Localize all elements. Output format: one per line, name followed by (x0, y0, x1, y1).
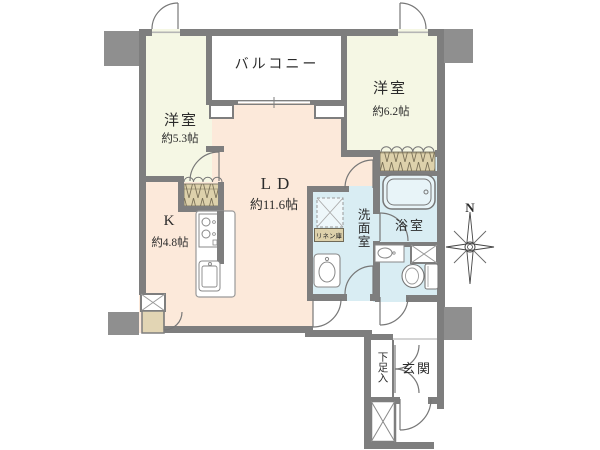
compass-star-icon (446, 212, 494, 284)
door-bedroom-right-window (400, 3, 426, 29)
meter-box-icon (141, 294, 165, 311)
entrance-label: 玄関 (402, 362, 432, 376)
bedroom-left-label: 洋室 (164, 114, 198, 130)
door-front (400, 399, 431, 430)
washbasin-icon (314, 254, 340, 287)
bathtub-icon (383, 175, 435, 209)
bathroom-label: 浴室 (395, 219, 425, 233)
stove-icon (199, 214, 219, 247)
kitchen-label: K (164, 214, 177, 230)
storage-box (142, 311, 164, 333)
linen-closet-label: リネン庫 (314, 228, 344, 242)
compass-north-label: N (465, 201, 474, 215)
living-dining-label: LD (261, 175, 296, 193)
floorplan-page: バルコニー 洋室 約5.3帖 洋室 約6.2帖 LD 約11.6帖 K 約4.8… (0, 0, 600, 450)
toilet-icon (402, 264, 438, 289)
hand-basin-icon (375, 245, 404, 262)
kitchen-sink-icon (199, 261, 220, 291)
shaft-box-icon (371, 401, 395, 442)
kitchen-size: 約4.8帖 (151, 237, 188, 249)
shoe-cabinet-label: 下足入 (376, 351, 387, 383)
balcony-label: バルコニー (235, 59, 320, 74)
pipe-space-icon (411, 245, 437, 263)
bedroom-left-size: 約5.3帖 (161, 133, 198, 145)
living-dining-size: 約11.6帖 (250, 198, 298, 212)
door-bedroom-left-window (152, 3, 178, 29)
washroom-label: 洗面室 (355, 208, 368, 249)
linen-closet-text: リネン庫 (316, 230, 342, 240)
washing-machine-pan-icon (317, 198, 343, 227)
bedroom-right-size: 約6.2帖 (372, 106, 409, 118)
bedroom-right-label: 洋室 (373, 82, 407, 98)
kitchen-counter (196, 211, 235, 297)
door-ld-hall (313, 299, 341, 327)
